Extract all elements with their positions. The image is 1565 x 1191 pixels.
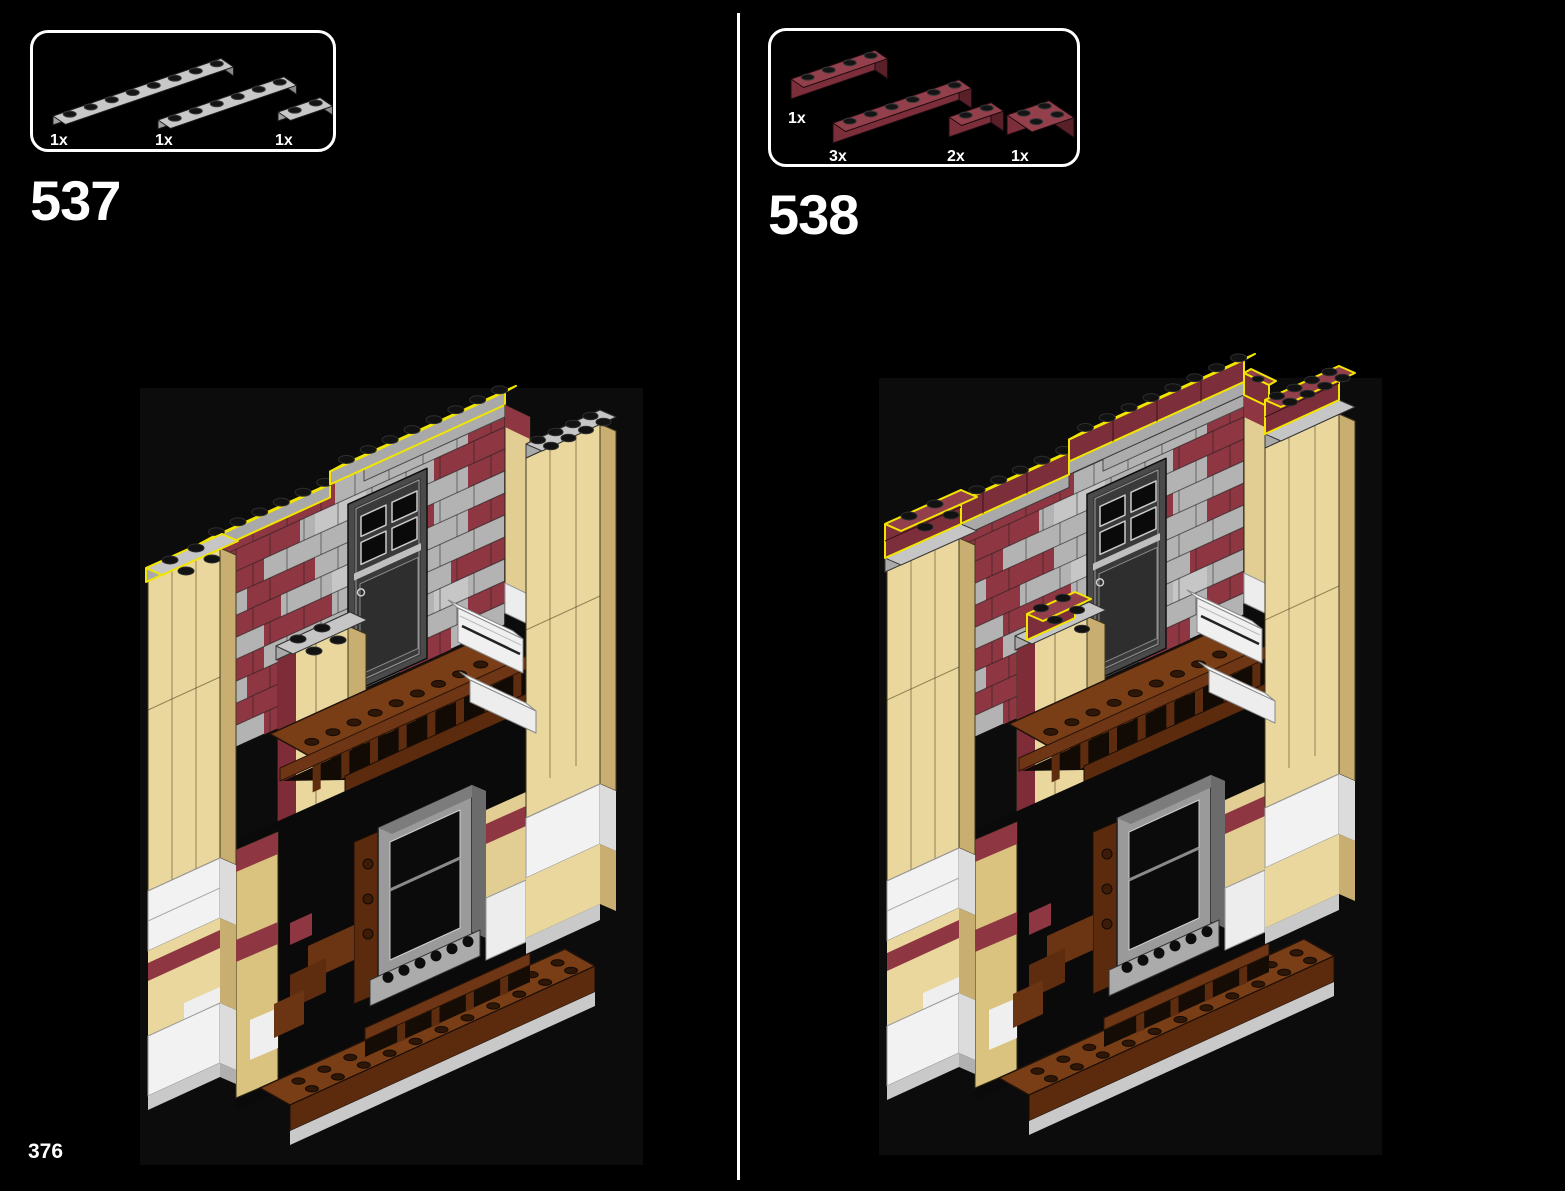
part-count-label: 1x xyxy=(155,132,173,149)
build-render-537 xyxy=(140,335,660,1165)
left-pillar xyxy=(885,490,977,1100)
part-count-label: 1x xyxy=(275,132,293,149)
step-number-537: 537 xyxy=(30,168,120,233)
right-pillar xyxy=(526,410,616,954)
part-count-label: 2x xyxy=(947,148,965,164)
brick-2x2-icon xyxy=(1007,101,1074,138)
parts-callout-538-canvas: 1x3x2x1x xyxy=(771,31,1077,164)
instruction-page: 1x1x1x 537 1x3x2x1x 538 376 xyxy=(0,0,1565,1191)
parts-callout-538: 1x3x2x1x xyxy=(768,28,1080,167)
part-count-label: 1x xyxy=(50,132,68,149)
column-divider xyxy=(737,13,740,1180)
plate-1x2-icon xyxy=(278,98,333,121)
brick-1x4-icon xyxy=(791,50,888,99)
build-render-538 xyxy=(879,325,1399,1155)
brick-1x2-icon xyxy=(949,103,1004,137)
left-pillar xyxy=(146,534,238,1110)
part-count-label: 3x xyxy=(829,148,847,164)
right-pillar xyxy=(1265,366,1355,944)
page-number: 376 xyxy=(28,1140,63,1164)
parts-callout-537: 1x1x1x xyxy=(30,30,336,152)
parts-callout-537-canvas: 1x1x1x xyxy=(33,33,333,149)
part-count-label: 1x xyxy=(1011,148,1029,164)
step-number-538: 538 xyxy=(768,182,858,247)
part-count-label: 1x xyxy=(788,110,806,127)
